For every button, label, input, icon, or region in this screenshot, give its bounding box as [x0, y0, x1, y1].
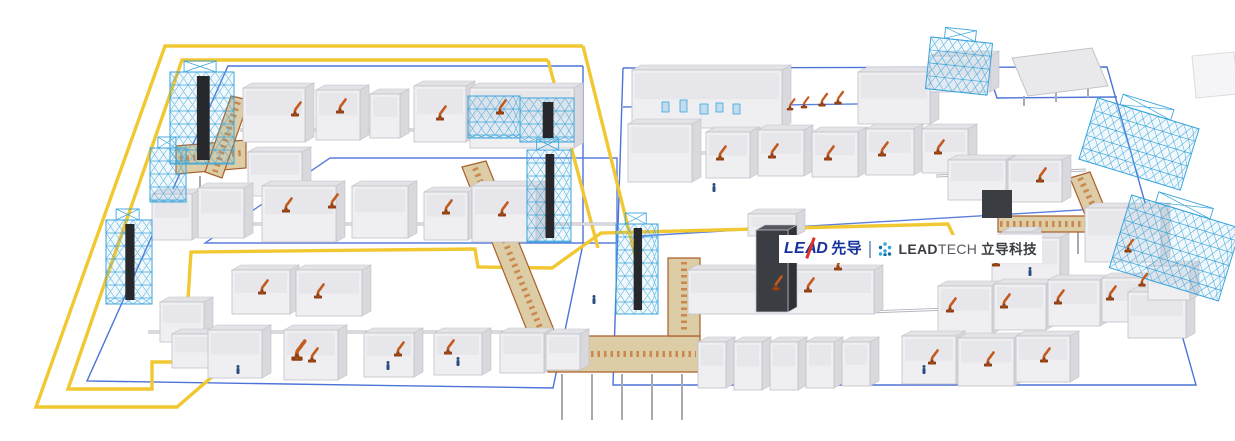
machine-interior	[941, 289, 989, 311]
machine-side	[1070, 331, 1079, 382]
worker-head	[457, 357, 460, 360]
robot-joint	[1042, 357, 1045, 360]
storage-rack	[527, 139, 571, 242]
worker-body	[387, 364, 390, 370]
robot-joint	[948, 307, 951, 310]
worker-figure	[713, 183, 716, 192]
machine-side	[574, 83, 583, 148]
machine-side	[244, 183, 253, 238]
machine-side	[580, 329, 589, 370]
machine-interior	[211, 333, 259, 355]
machine-side	[1062, 155, 1071, 202]
machine-side	[338, 325, 347, 380]
machine-interior	[709, 135, 747, 156]
worker-head	[1029, 267, 1032, 270]
worker-figure	[387, 361, 390, 370]
flat-panel	[1012, 48, 1108, 96]
machine-interior	[265, 189, 333, 214]
machine-top	[434, 328, 491, 333]
flat-panel	[1192, 52, 1235, 98]
robot-joint	[806, 287, 809, 290]
machine-interior	[175, 337, 213, 352]
leadtech-light: TECH	[938, 242, 977, 256]
machine-top	[414, 81, 475, 86]
robot-joint	[330, 203, 333, 206]
worker-body	[923, 368, 926, 374]
machine-top	[248, 147, 311, 152]
robot-joint	[826, 155, 829, 158]
robot-joint	[936, 149, 939, 152]
worker-body	[1029, 270, 1032, 276]
machine-interior	[925, 132, 965, 152]
machine-interior	[701, 345, 723, 366]
robot-joint	[718, 155, 721, 158]
machine-interior	[373, 97, 397, 117]
machine-interior	[503, 336, 541, 354]
machine-interior	[475, 189, 533, 214]
machine-side	[782, 65, 791, 128]
machine-interior	[845, 345, 867, 365]
robot-joint	[284, 207, 287, 210]
machine-side	[262, 325, 271, 378]
robot-joint	[498, 109, 501, 112]
machine-top	[262, 181, 345, 186]
rack-frame	[468, 96, 520, 138]
machine-top	[1016, 331, 1079, 336]
machine-interior	[869, 132, 911, 153]
machine-side	[870, 337, 879, 386]
machine-interior	[905, 339, 953, 361]
machine-side	[414, 328, 423, 377]
machine-interior	[355, 189, 405, 212]
machine-interior	[163, 305, 201, 323]
machine-interior	[761, 133, 801, 154]
robot-joint	[338, 108, 341, 111]
robot-joint	[293, 111, 296, 114]
worker-body	[457, 360, 460, 366]
machine-interior	[201, 191, 241, 214]
worker-body	[713, 186, 716, 192]
robot-joint	[836, 265, 839, 268]
machine-top	[748, 209, 805, 214]
machine-top	[284, 325, 347, 330]
rack-dark-columns	[125, 224, 134, 300]
equipment-accent	[733, 104, 740, 114]
equipment-accent	[700, 104, 708, 114]
machine-top	[470, 83, 583, 88]
machine-interior	[809, 345, 831, 366]
logo-dot	[887, 252, 890, 255]
machine-interior	[961, 341, 1011, 363]
machine-top	[1048, 275, 1109, 280]
worker-figure	[923, 365, 926, 374]
lead-d: D	[816, 241, 828, 257]
machine-top	[628, 119, 701, 124]
machine-interior	[299, 273, 359, 294]
machine-side	[360, 85, 369, 140]
lead-a-glyph: A	[805, 241, 816, 257]
robot-joint	[1038, 177, 1041, 180]
dark-equipment	[982, 190, 1012, 218]
machine-top	[232, 265, 299, 270]
robot-joint	[1127, 248, 1130, 251]
machine-side	[796, 209, 805, 236]
worker-body	[593, 298, 596, 304]
robot-joint	[444, 209, 447, 212]
robot-joint	[930, 359, 933, 362]
storage-rack	[106, 209, 152, 304]
equipment-accent	[662, 102, 669, 112]
machine-interior	[815, 135, 855, 155]
lead-chinese: 先导	[831, 241, 862, 256]
robot-joint	[260, 289, 263, 292]
leadtech-logo: LEAD 先导 LEADTECH立导科技	[779, 235, 1042, 263]
rack-top-brace	[625, 213, 646, 224]
storage-rack	[520, 98, 574, 142]
machine-interior	[287, 333, 335, 356]
machine-interior	[631, 127, 689, 153]
robot-joint	[295, 354, 299, 358]
robot-joint	[438, 115, 441, 118]
machine-top	[632, 65, 791, 70]
worker-head	[593, 295, 596, 298]
machine-top	[938, 281, 1001, 286]
machine-interior	[417, 89, 463, 114]
logo-dot	[887, 246, 890, 249]
worker-head	[387, 361, 390, 364]
equipment-accent	[680, 100, 687, 112]
equipment-accent	[716, 103, 723, 112]
robot-joint	[500, 211, 503, 214]
worker-figure	[1029, 267, 1032, 276]
machine-side	[408, 181, 417, 238]
robot-joint	[1141, 282, 1144, 285]
worker-head	[713, 183, 716, 186]
logo-dot	[878, 252, 881, 255]
machine-interior	[861, 75, 927, 98]
machine-interior	[737, 345, 759, 367]
lead-le: LE	[784, 241, 805, 257]
logo-dot	[878, 246, 881, 249]
robot-joint	[316, 293, 319, 296]
machine-side	[692, 119, 701, 182]
machine-top	[296, 265, 371, 270]
machine-side	[400, 89, 409, 138]
leadtech-dots-icon	[878, 242, 892, 256]
storage-rack	[468, 96, 520, 138]
machine-side	[362, 265, 371, 316]
worker-body	[237, 368, 240, 374]
worker-figure	[457, 357, 460, 366]
machine-interior	[251, 155, 299, 175]
machine-top	[243, 83, 314, 88]
robot-joint	[396, 351, 399, 354]
rack-dark-columns	[545, 154, 554, 238]
machine-side	[336, 181, 345, 242]
machine-top	[902, 331, 965, 336]
logo-dot	[883, 242, 886, 245]
worker-figure	[237, 365, 240, 374]
machine-interior	[367, 336, 411, 356]
rack-dark-columns	[197, 76, 210, 160]
machine-side	[482, 328, 491, 375]
robot-arm	[834, 92, 843, 105]
machine-top	[994, 279, 1055, 284]
worker-head	[923, 365, 926, 368]
worker-head	[237, 365, 240, 368]
factory-scene-canvas	[0, 0, 1235, 441]
lead-wordmark: LEAD 先导	[784, 241, 862, 257]
machine-side	[305, 83, 314, 142]
machine-top	[866, 124, 923, 129]
machine-interior	[635, 73, 779, 99]
factory-layout-illustration: LEAD 先导 LEADTECH立导科技	[0, 0, 1235, 441]
machine-interior	[951, 163, 1003, 181]
robot-joint	[310, 357, 313, 360]
machine-interior	[773, 345, 795, 367]
robot-joint	[880, 151, 883, 154]
robot-joint	[821, 102, 824, 105]
machine-top	[958, 333, 1023, 338]
rack-top-brace	[184, 61, 216, 72]
machine-top	[948, 155, 1015, 160]
robot-joint	[1002, 303, 1005, 306]
robot-joint	[803, 104, 806, 107]
machine-interior	[549, 337, 577, 353]
machine-top	[208, 325, 271, 330]
logo-dot	[883, 253, 886, 256]
robot-joint	[1108, 295, 1111, 298]
equipment-dark-block	[982, 190, 1012, 218]
robot-joint	[986, 361, 989, 364]
robot-arm	[801, 97, 809, 108]
worker-figure	[593, 295, 596, 304]
rack-dark-columns	[634, 228, 642, 310]
logo-divider	[869, 241, 871, 258]
storage-rack	[616, 213, 658, 314]
leadtech-bold: LEAD	[899, 242, 938, 256]
robot-joint	[770, 153, 773, 156]
rack-dark-columns	[543, 102, 554, 138]
machine-interior	[1011, 163, 1059, 182]
machine-side	[874, 265, 883, 314]
robot-joint	[446, 349, 449, 352]
machine-top	[352, 181, 417, 186]
machine-interior	[437, 336, 479, 355]
storage-rack	[925, 26, 993, 95]
robot-joint	[774, 285, 777, 288]
display-panels	[1012, 48, 1235, 98]
robot-joint	[1056, 299, 1059, 302]
machine-top	[1008, 155, 1071, 160]
robot-joint	[837, 100, 840, 103]
logo-dot	[883, 249, 886, 252]
leadtech-chinese: 立导科技	[981, 243, 1037, 257]
storage-rack	[1079, 87, 1202, 190]
leadtech-wordmark: LEADTECH立导科技	[899, 242, 1038, 257]
machine-top	[364, 328, 423, 333]
robot-joint	[789, 106, 792, 109]
